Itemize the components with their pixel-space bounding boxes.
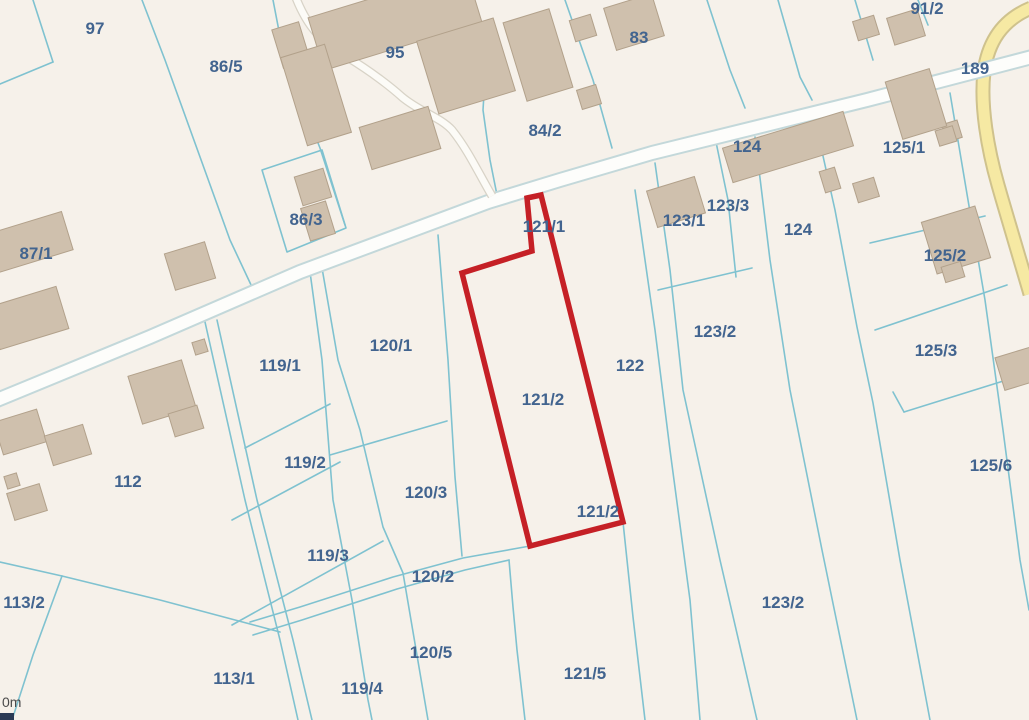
parcel-label: 83: [630, 28, 649, 47]
parcel-label-selected: 121/2: [522, 390, 565, 409]
parcel-label: 120/1: [370, 336, 413, 355]
parcel-label: 119/4: [341, 679, 383, 698]
parcel-label-selected: 121/2: [577, 502, 620, 521]
parcel-label: 123/2: [762, 593, 805, 612]
building: [819, 167, 841, 193]
parcel-label: 125/1: [883, 138, 926, 157]
building: [192, 339, 208, 355]
parcel-label: 122: [616, 356, 644, 375]
parcel-label: 119/3: [307, 546, 349, 565]
parcel-label: 125/6: [970, 456, 1013, 475]
yellow-road: [983, 8, 1029, 294]
parcel-label: 123/1: [663, 211, 706, 230]
building: [44, 424, 91, 465]
cadastral-map: 97 86/5 95 83 91/2 189 84/2 124 125/1 86…: [0, 0, 1029, 720]
parcel-label: 86/5: [209, 57, 242, 76]
building: [0, 409, 46, 455]
logo-fragment: [0, 713, 14, 720]
building: [4, 473, 20, 489]
parcel-label: 95: [386, 43, 405, 62]
parcel-label: 91/2: [910, 0, 943, 18]
building: [359, 106, 441, 169]
parcel-label: 119/1: [259, 356, 301, 375]
building: [569, 14, 596, 41]
parcel-boundaries: [0, 0, 1029, 720]
parcel-label: 123/2: [694, 322, 737, 341]
parcel-label: 120/3: [405, 483, 448, 502]
building: [995, 346, 1029, 391]
building: [164, 242, 215, 291]
building: [853, 177, 880, 203]
buildings: [0, 0, 1029, 520]
parcel-label: 113/1: [213, 669, 255, 688]
parcel-label: 121/1: [523, 217, 566, 236]
parcel-label: 120/2: [412, 567, 455, 586]
scale-label: 0m: [2, 694, 21, 710]
parcel-label: 124: [784, 220, 813, 239]
parcel-label: 86/3: [289, 210, 322, 229]
parcel-label: 125/3: [915, 341, 958, 360]
building: [294, 168, 331, 205]
parcel-label: 121/5: [564, 664, 607, 683]
parcel-label: 124: [733, 137, 762, 156]
parcel-label: 84/2: [528, 121, 561, 140]
parcel-label: 125/2: [924, 246, 967, 265]
building: [853, 15, 880, 41]
building: [0, 211, 73, 272]
selected-parcel-outline[interactable]: [462, 195, 623, 546]
building: [7, 484, 48, 521]
parcel-label: 123/3: [707, 196, 750, 215]
map-canvas[interactable]: 97 86/5 95 83 91/2 189 84/2 124 125/1 86…: [0, 0, 1029, 720]
parcel-label: 189: [961, 59, 989, 78]
building: [577, 85, 602, 110]
main-road: [0, 57, 1029, 400]
parcel-label: 112: [114, 472, 141, 491]
parcel-label: 113/2: [3, 593, 45, 612]
building: [0, 286, 69, 349]
parcel-label: 87/1: [19, 244, 52, 263]
parcel-label: 120/5: [410, 643, 453, 662]
parcel-label: 97: [86, 19, 105, 38]
parcel-label: 119/2: [284, 453, 326, 472]
